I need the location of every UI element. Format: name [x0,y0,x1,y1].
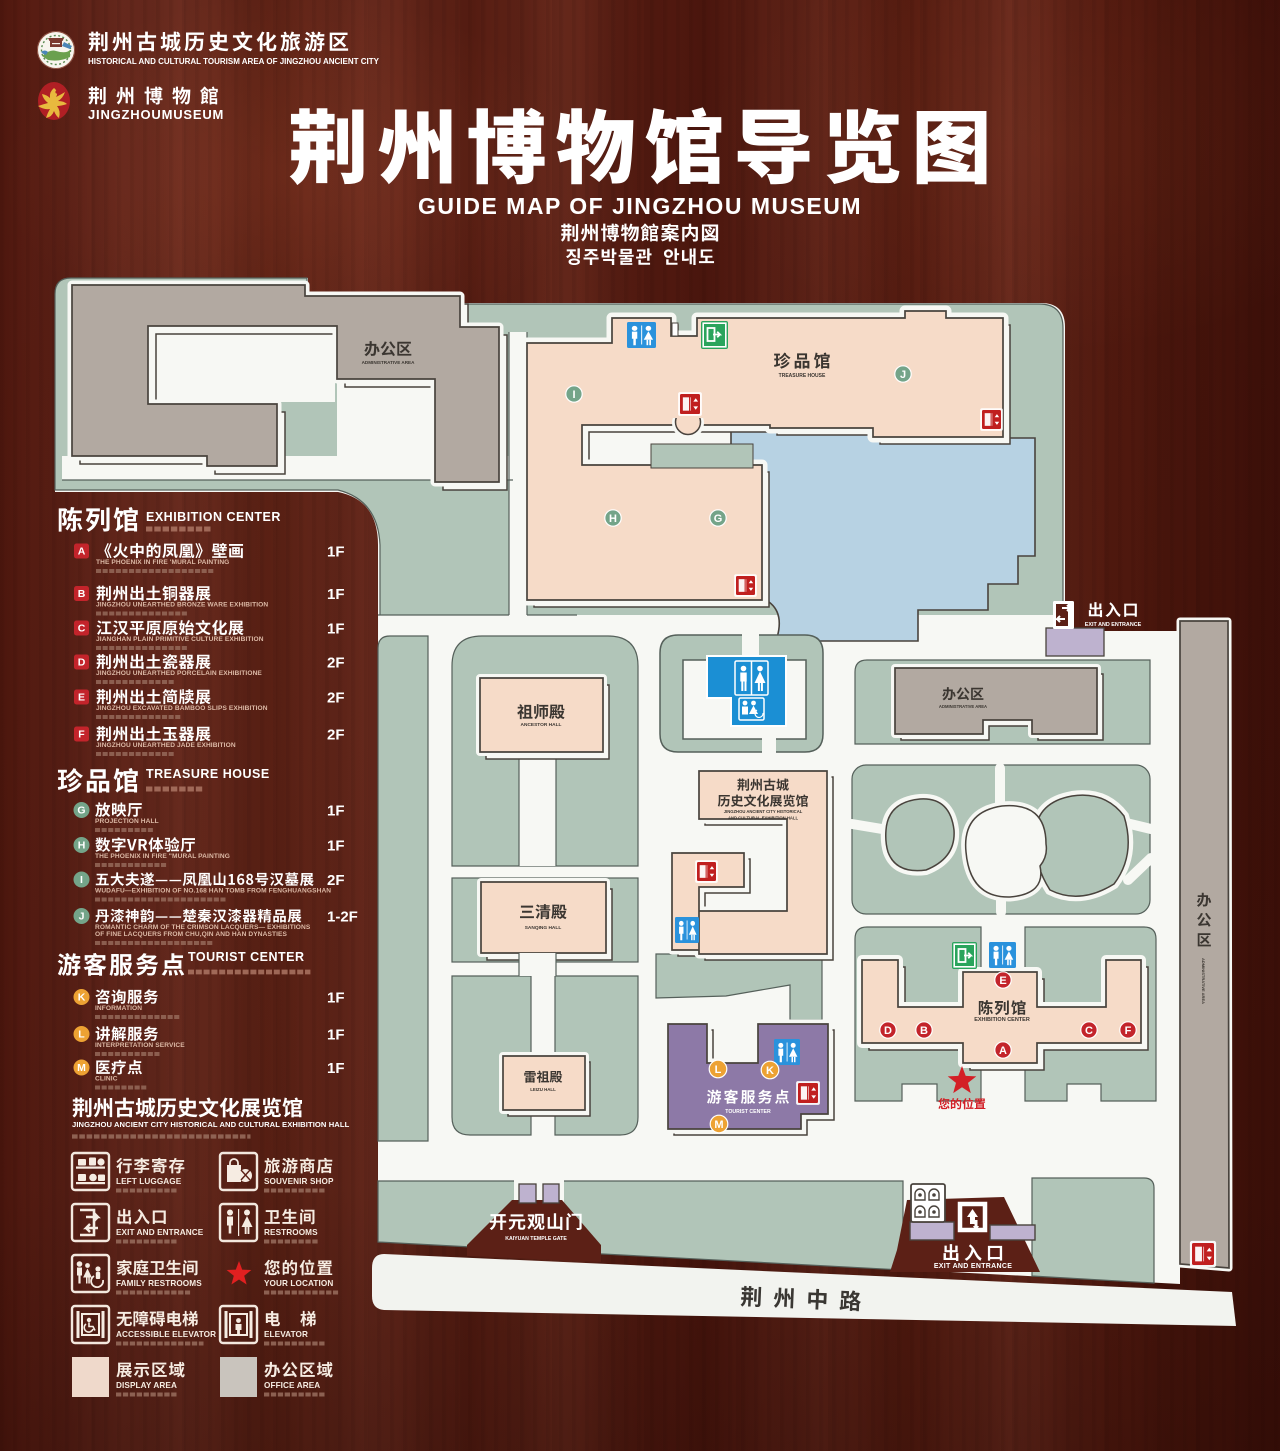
svg-text:J: J [79,911,85,923]
svg-text:INTERPRETATION SERVICE: INTERPRETATION SERVICE [95,1042,185,1049]
svg-text:TREASURE HOUSE: TREASURE HOUSE [779,373,826,379]
svg-text:1F: 1F [327,586,345,603]
svg-text:J: J [900,369,906,381]
svg-text:1F: 1F [327,1027,345,1044]
svg-text:FAMILY RESTROOMS: FAMILY RESTROOMS [116,1279,202,1288]
svg-text:EXIT AND ENTRANCE: EXIT AND ENTRANCE [934,1263,1012,1270]
svg-text:OFFICE AREA: OFFICE AREA [264,1381,320,1390]
svg-text:TREASURE HOUSE: TREASURE HOUSE [146,767,270,781]
svg-text:1F: 1F [327,621,345,638]
svg-text:ANCESTOR HALL: ANCESTOR HALL [521,722,562,728]
svg-text:1F: 1F [327,838,345,855]
svg-text:L: L [715,1064,722,1076]
svg-text:A: A [78,546,86,558]
svg-text:ADMINISTRATIVE AREA: ADMINISTRATIVE AREA [939,704,987,709]
svg-text:JINGZHOU ANCIENT CITY HISTORIC: JINGZHOU ANCIENT CITY HISTORICAL [724,809,803,814]
svg-text:E: E [999,975,1006,987]
svg-text:F: F [1125,1025,1132,1037]
svg-text:SOUVENIR SHOP: SOUVENIR SHOP [264,1177,334,1186]
svg-text:EXHIBITION CENTER: EXHIBITION CENTER [974,1017,1030,1023]
svg-text:1F: 1F [327,803,345,820]
svg-text:ROMANTIC CHARM OF THE CRIMSON: ROMANTIC CHARM OF THE CRIMSON LACQUERS— … [95,924,311,931]
svg-text:H: H [609,513,617,525]
svg-text:LEIZU HALL: LEIZU HALL [530,1087,556,1092]
svg-text:ADMINISTRATIVE AREA: ADMINISTRATIVE AREA [362,360,416,365]
svg-text:ADMINISTRATIVE AREA: ADMINISTRATIVE AREA [1201,958,1206,1004]
svg-text:RESTROOMS: RESTROOMS [264,1228,318,1237]
svg-text:AND CULTURAL EXHIBITION HALL: AND CULTURAL EXHIBITION HALL [728,816,799,821]
svg-text:M: M [77,1062,86,1074]
svg-text:INFORMATION: INFORMATION [95,1005,142,1012]
svg-text:PROJECTION HALL: PROJECTION HALL [95,818,159,825]
svg-text:I: I [80,874,83,886]
svg-text:K: K [766,1065,774,1077]
svg-text:KAIYUAN TEMPLE GATE: KAIYUAN TEMPLE GATE [505,1236,567,1242]
svg-text:ELEVATOR: ELEVATOR [264,1330,308,1339]
svg-text:I: I [572,389,575,401]
svg-text:EXIT AND ENTRANCE: EXIT AND ENTRANCE [116,1228,204,1237]
svg-text:C: C [1085,1025,1093,1037]
svg-text:1F: 1F [327,990,345,1007]
svg-text:H: H [78,840,86,852]
svg-text:LEFT LUGGAGE: LEFT LUGGAGE [116,1177,182,1186]
svg-text:B: B [78,588,86,600]
svg-text:M: M [714,1119,723,1131]
svg-text:DISPLAY AREA: DISPLAY AREA [116,1381,177,1390]
svg-text:2F: 2F [327,727,345,744]
svg-text:C: C [78,623,86,635]
svg-text:G: G [714,513,723,525]
svg-text:JINGZHOUMUSEUM: JINGZHOUMUSEUM [88,107,224,122]
svg-text:JINGZHOU ANCIENT CITY HISTORIC: JINGZHOU ANCIENT CITY HISTORICAL AND CUL… [72,1120,350,1129]
svg-text:2F: 2F [327,872,345,889]
svg-text:OF FINE LACQUERS FROM CHU,QIN: OF FINE LACQUERS FROM CHU,QIN AND HAN DY… [95,931,288,938]
svg-text:JINGZHOU UNEARTHED PORCELAIN E: JINGZHOU UNEARTHED PORCELAIN EXHIBITIONE [96,670,262,677]
svg-text:2F: 2F [327,690,345,707]
svg-text:THE PHOENIX IN FIRE 'MURAL PAI: THE PHOENIX IN FIRE 'MURAL PAINTING [96,559,229,566]
svg-text:F: F [78,729,85,741]
svg-text:B: B [920,1025,928,1037]
svg-text:1F: 1F [327,544,345,561]
svg-text:JINGZHOU UNEARTHED BRONZE WARE: JINGZHOU UNEARTHED BRONZE WARE EXHIBITIO… [96,602,268,609]
svg-text:HISTORICAL AND CULTURAL TOURIS: HISTORICAL AND CULTURAL TOURISM AREA OF … [88,57,380,66]
svg-text:1F: 1F [327,1060,345,1077]
svg-text:EXHIBITION CENTER: EXHIBITION CENTER [146,510,281,524]
svg-text:G: G [77,805,85,817]
svg-text:JINGZHOU UNEARTHED JADE EXHIBI: JINGZHOU UNEARTHED JADE EXHIBITION [96,742,236,749]
svg-text:E: E [78,692,85,704]
svg-text:YOUR LOCATION: YOUR LOCATION [264,1279,333,1288]
svg-text:EXIT AND ENTRANCE: EXIT AND ENTRANCE [1085,622,1142,628]
svg-text:2F: 2F [327,655,345,672]
svg-text:TOURIST CENTER: TOURIST CENTER [188,950,305,964]
svg-text:K: K [78,992,86,1004]
svg-text:GUIDE MAP OF JINGZHOU MUSEUM: GUIDE MAP OF JINGZHOU MUSEUM [418,193,862,219]
svg-text:1-2F: 1-2F [327,909,358,926]
svg-text:JINGZHOU EXCAVATED BAMBOO SLIP: JINGZHOU EXCAVATED BAMBOO SLIPS EXHIBITI… [96,705,268,712]
svg-text:WUDAFU—EXHIBITION OF NO.168 HA: WUDAFU—EXHIBITION OF NO.168 HAN TOMB FRO… [95,888,331,895]
svg-text:TOURIST CENTER: TOURIST CENTER [725,1109,771,1115]
svg-text:JIANGHAN PLAIN PRIMITIVE CULTU: JIANGHAN PLAIN PRIMITIVE CULTURE EXHIBIT… [96,636,264,643]
svg-text:CLINIC: CLINIC [95,1076,118,1083]
svg-text:ACCESSIBLE ELEVATOR: ACCESSIBLE ELEVATOR [116,1330,216,1339]
svg-text:D: D [78,657,86,669]
svg-text:SANQING HALL: SANQING HALL [525,925,562,931]
svg-text:THE PHOENIX IN FIRE "MURAL PAI: THE PHOENIX IN FIRE "MURAL PAINTING [95,853,230,860]
svg-text:L: L [78,1029,85,1041]
svg-text:D: D [884,1025,892,1037]
svg-text:A: A [999,1045,1007,1057]
